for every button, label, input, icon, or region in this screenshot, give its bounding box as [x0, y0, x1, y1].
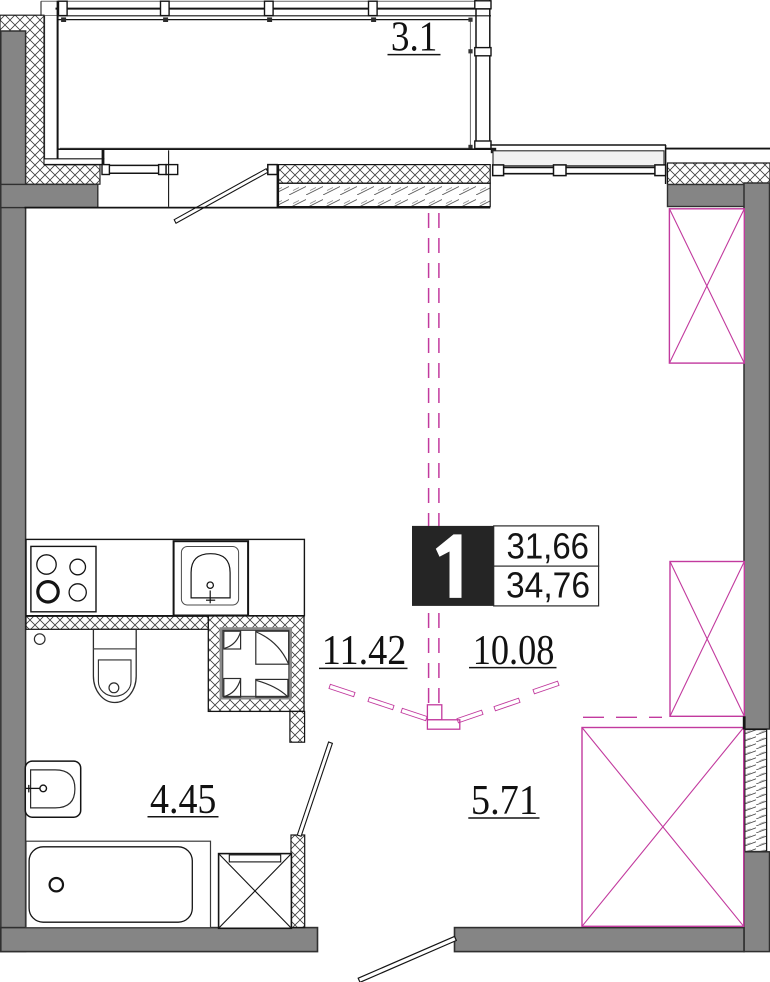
svg-text:11.42: 11.42: [322, 628, 407, 674]
svg-text:34,76: 34,76: [506, 564, 590, 605]
svg-text:3.1: 3.1: [391, 15, 438, 61]
svg-text:31,66: 31,66: [507, 526, 590, 567]
